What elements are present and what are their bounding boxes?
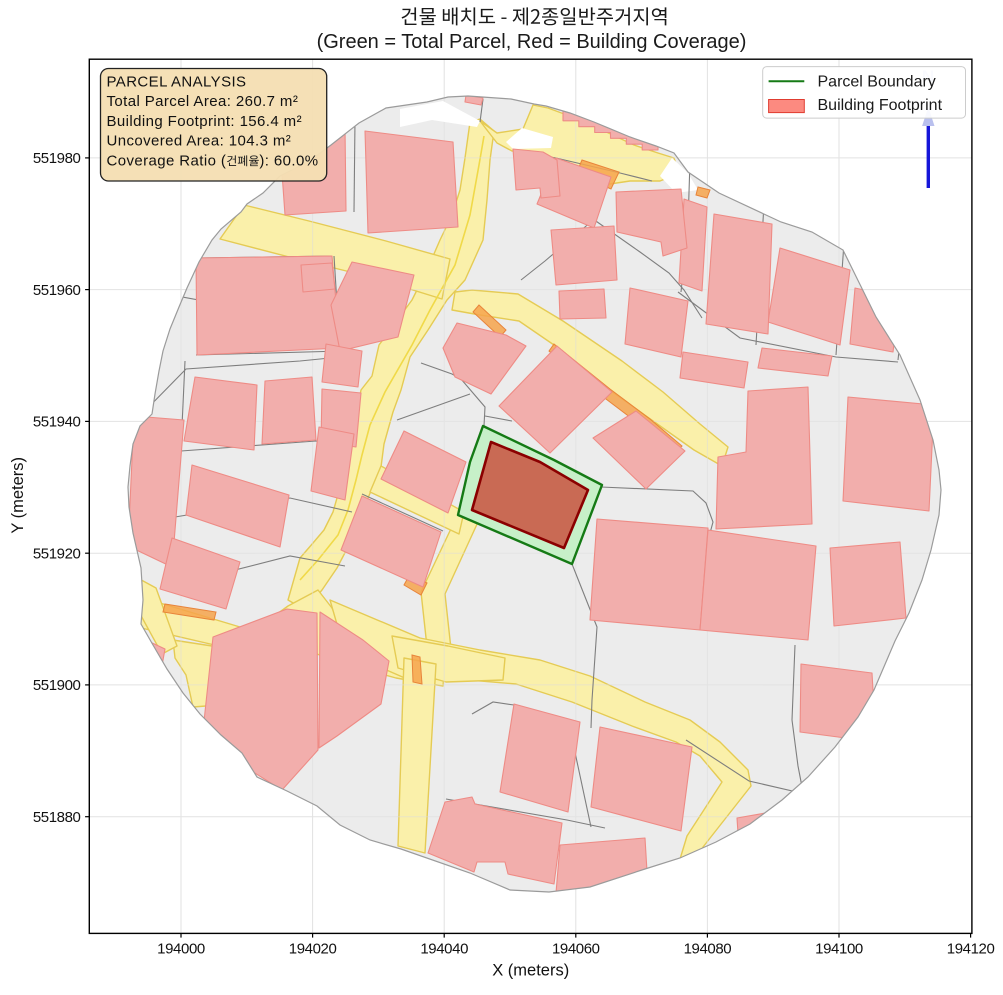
- svg-text:Parcel Boundary: Parcel Boundary: [818, 73, 936, 90]
- svg-text:(Green = Total Parcel, Red = B: (Green = Total Parcel, Red = Building Co…: [317, 31, 747, 53]
- svg-text:Coverage Ratio (: Coverage Ratio (: [107, 152, 227, 169]
- svg-text:194080: 194080: [684, 941, 732, 958]
- svg-text:Building Footprint: Building Footprint: [818, 97, 943, 114]
- svg-text:194100: 194100: [815, 941, 863, 958]
- svg-text:194000: 194000: [157, 941, 205, 958]
- svg-text:Y (meters): Y (meters): [9, 457, 27, 534]
- svg-text:194060: 194060: [552, 941, 600, 958]
- svg-text:194040: 194040: [420, 941, 468, 958]
- svg-text:): 60.0%: ): 60.0%: [259, 152, 318, 169]
- svg-text:551960: 551960: [33, 282, 81, 299]
- svg-text:Total Parcel Area: 260.7 m²: Total Parcel Area: 260.7 m²: [107, 93, 299, 110]
- svg-text:PARCEL ANALYSIS: PARCEL ANALYSIS: [107, 74, 247, 91]
- svg-text:551920: 551920: [33, 546, 81, 563]
- svg-text:551880: 551880: [33, 809, 81, 826]
- svg-text:551900: 551900: [33, 677, 81, 694]
- svg-text:Building Footprint: 156.4 m²: Building Footprint: 156.4 m²: [107, 113, 302, 130]
- svg-text:X (meters): X (meters): [492, 961, 569, 979]
- svg-text:Uncovered Area: 104.3 m²: Uncovered Area: 104.3 m²: [107, 133, 292, 150]
- svg-text:194020: 194020: [289, 941, 337, 958]
- svg-text:551980: 551980: [33, 150, 81, 167]
- svg-text:551940: 551940: [33, 414, 81, 431]
- svg-text:194120: 194120: [947, 941, 995, 958]
